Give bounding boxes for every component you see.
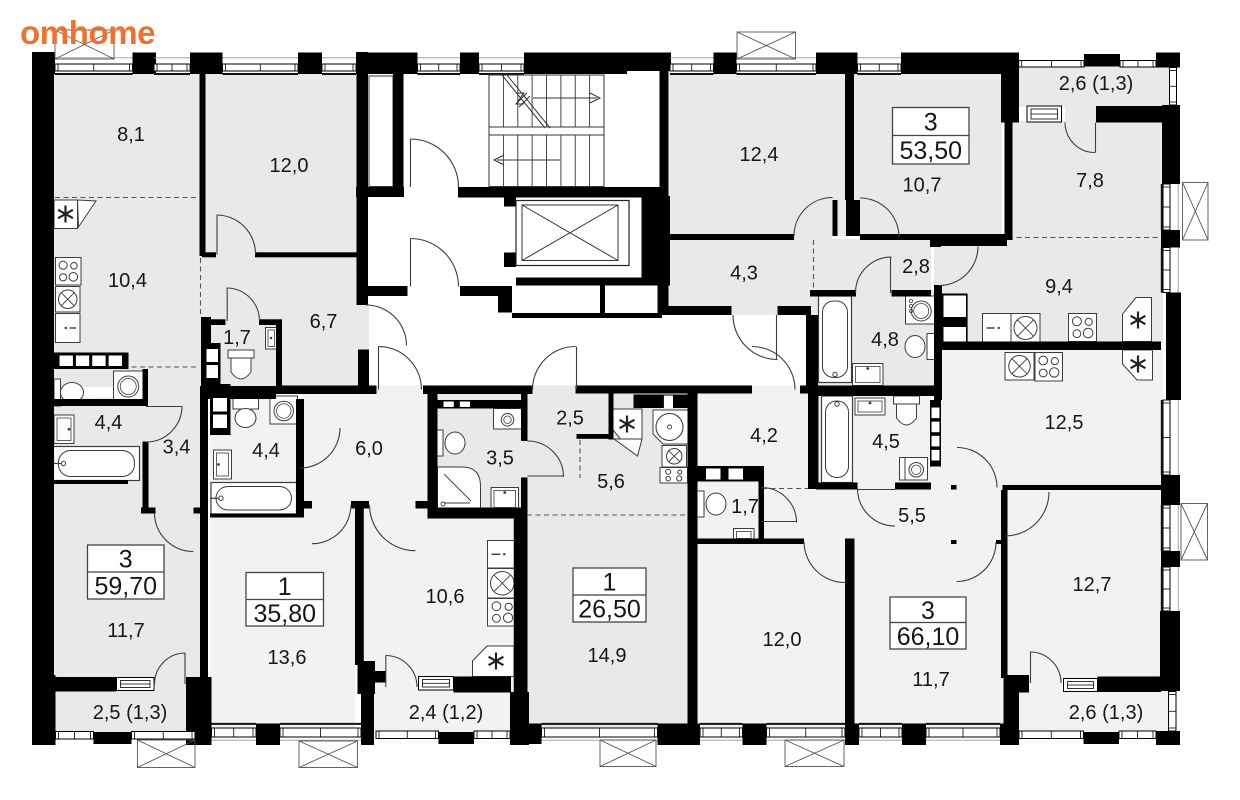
svg-text:7,8: 7,8 — [1076, 170, 1104, 192]
svg-text:5,5: 5,5 — [898, 505, 926, 527]
svg-text:4,5: 4,5 — [872, 431, 900, 453]
svg-text:12,4: 12,4 — [740, 144, 779, 166]
svg-text:66,10: 66,10 — [897, 623, 960, 651]
svg-text:4,4: 4,4 — [252, 440, 280, 462]
svg-text:1,7: 1,7 — [731, 496, 759, 518]
svg-text:2,5 (1,3): 2,5 (1,3) — [93, 702, 167, 724]
svg-text:11,7: 11,7 — [107, 620, 144, 642]
svg-text:12,0: 12,0 — [270, 155, 309, 177]
svg-text:3,4: 3,4 — [163, 437, 191, 459]
svg-text:2,8: 2,8 — [902, 256, 930, 278]
svg-text:12,5: 12,5 — [1045, 412, 1084, 434]
svg-text:2,5: 2,5 — [556, 408, 584, 430]
svg-text:4,4: 4,4 — [95, 412, 123, 434]
svg-text:6,7: 6,7 — [310, 311, 338, 333]
svg-text:4,3: 4,3 — [730, 263, 758, 285]
svg-text:1,7: 1,7 — [223, 327, 251, 349]
svg-text:11,7: 11,7 — [912, 669, 949, 691]
svg-text:omhome: omhome — [20, 14, 155, 51]
svg-text:2,4 (1,2): 2,4 (1,2) — [409, 702, 483, 724]
svg-text:3: 3 — [119, 546, 133, 574]
svg-text:2,6 (1,3): 2,6 (1,3) — [1069, 702, 1143, 724]
svg-text:1: 1 — [603, 569, 617, 597]
svg-text:10,7: 10,7 — [903, 175, 942, 197]
svg-text:4,8: 4,8 — [871, 329, 899, 351]
svg-text:10,6: 10,6 — [426, 586, 465, 608]
svg-text:26,50: 26,50 — [578, 596, 641, 624]
svg-text:59,70: 59,70 — [94, 573, 157, 601]
svg-text:8,1: 8,1 — [117, 124, 145, 146]
svg-text:3,5: 3,5 — [486, 448, 514, 470]
svg-text:35,80: 35,80 — [253, 600, 316, 628]
svg-text:12,0: 12,0 — [763, 629, 802, 651]
svg-text:1: 1 — [278, 573, 292, 601]
svg-text:14,9: 14,9 — [588, 645, 627, 667]
svg-text:13,6: 13,6 — [268, 647, 307, 669]
svg-text:6,0: 6,0 — [355, 438, 383, 460]
svg-text:10,4: 10,4 — [108, 270, 147, 292]
svg-text:4,2: 4,2 — [750, 425, 778, 447]
svg-text:5,6: 5,6 — [597, 471, 625, 493]
svg-text:9,4: 9,4 — [1045, 276, 1073, 298]
svg-text:2,6 (1,3): 2,6 (1,3) — [1059, 73, 1133, 95]
svg-text:3: 3 — [924, 109, 938, 137]
svg-text:53,50: 53,50 — [899, 137, 962, 165]
svg-text:3: 3 — [921, 597, 935, 625]
svg-text:12,7: 12,7 — [1073, 574, 1112, 596]
